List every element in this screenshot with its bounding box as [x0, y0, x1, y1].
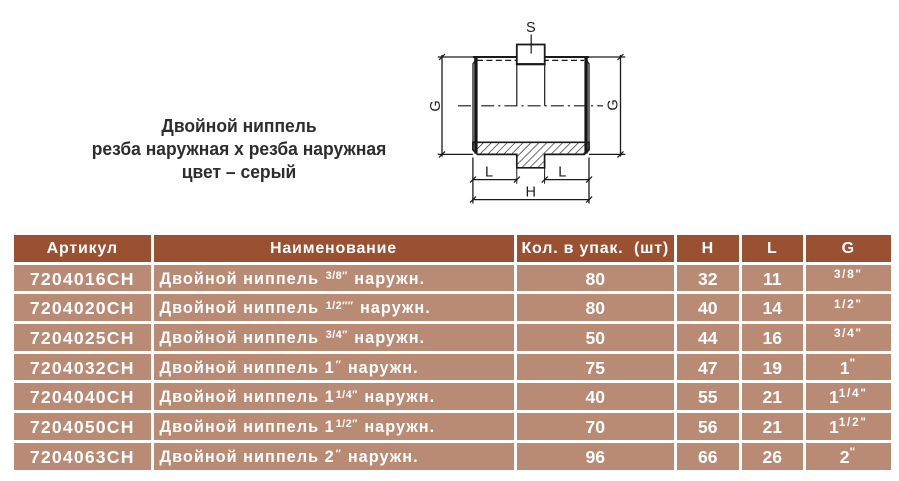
- svg-text:H: H: [526, 185, 536, 201]
- svg-text:S: S: [526, 20, 536, 36]
- svg-text:G: G: [606, 99, 622, 110]
- svg-text:L: L: [558, 165, 566, 181]
- svg-text:G: G: [428, 100, 444, 111]
- svg-text:L: L: [485, 165, 493, 181]
